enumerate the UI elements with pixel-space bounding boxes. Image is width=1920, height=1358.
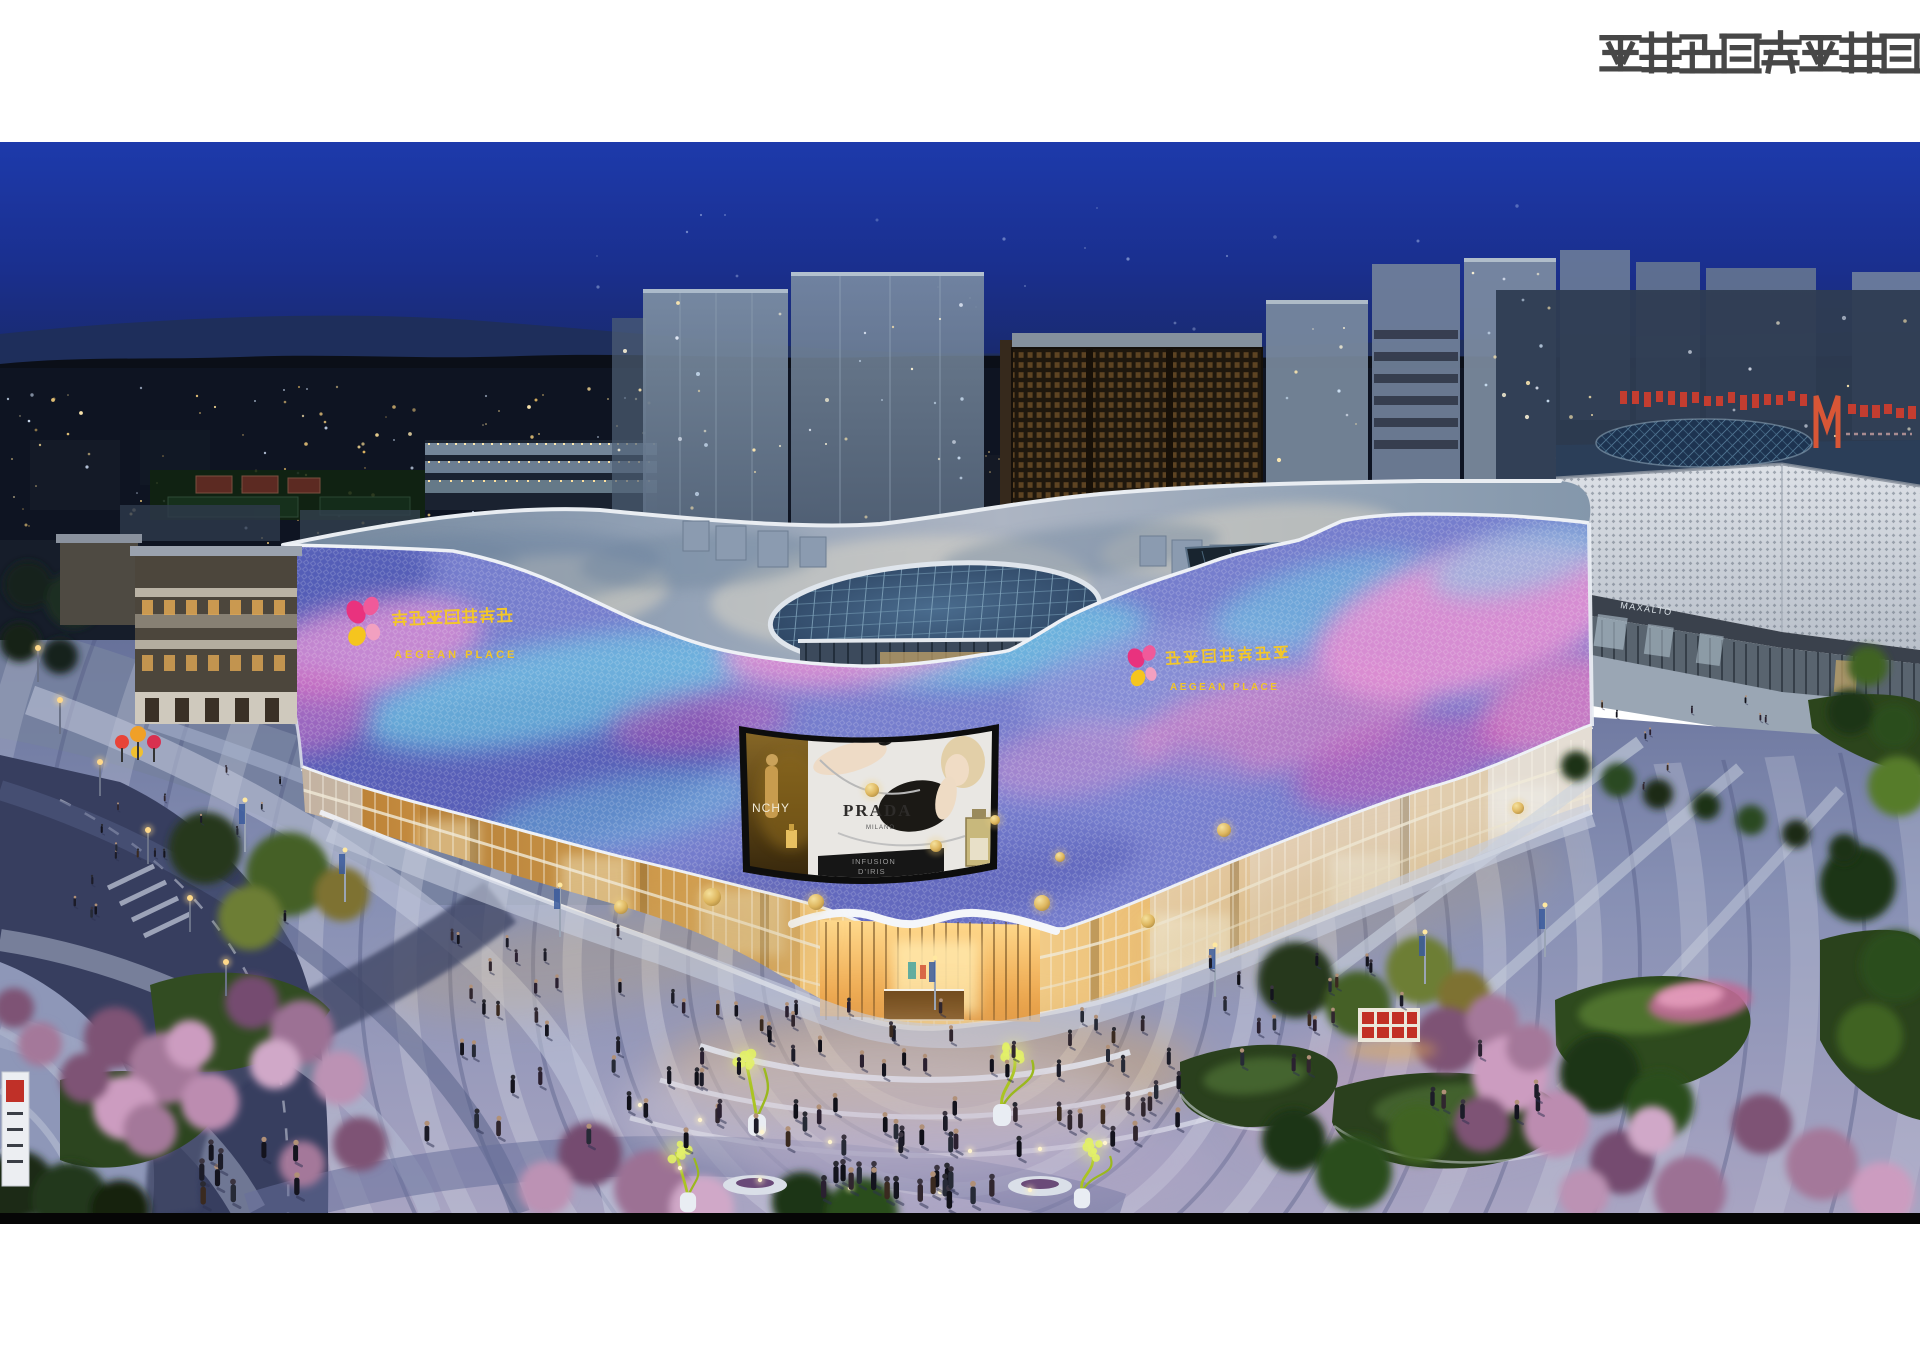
svg-text:NCHY: NCHY — [752, 801, 790, 815]
svg-text:AEGEAN PLACE: AEGEAN PLACE — [394, 649, 517, 661]
svg-text:AEGEAN PLACE: AEGEAN PLACE — [1170, 682, 1279, 693]
svg-text:MILANO: MILANO — [866, 825, 895, 831]
svg-text:INFUSION: INFUSION — [852, 857, 896, 866]
svg-text:D’IRIS: D’IRIS — [858, 867, 886, 876]
svg-text:PRADA: PRADA — [843, 801, 913, 820]
